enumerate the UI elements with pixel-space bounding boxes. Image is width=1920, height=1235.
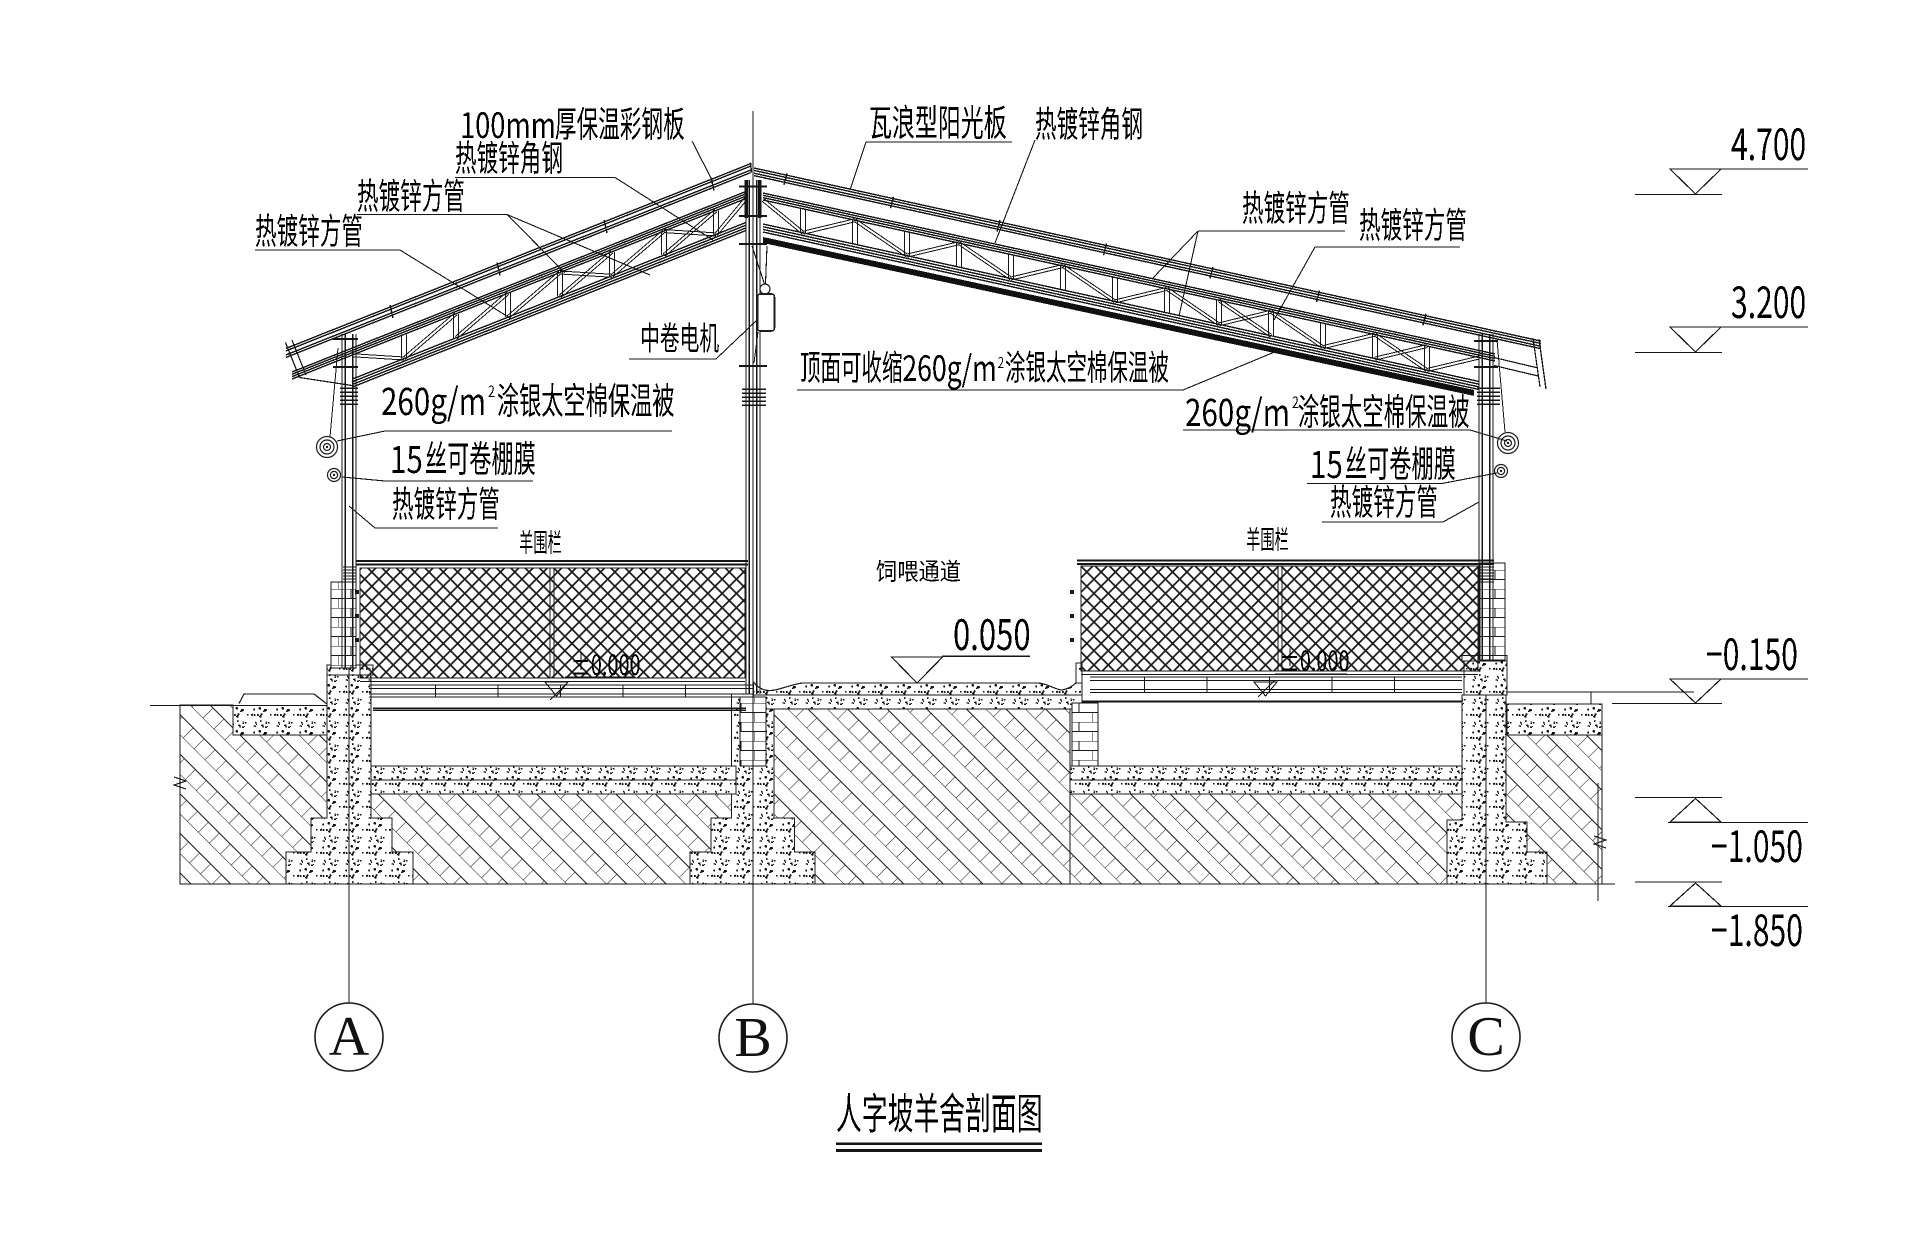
svg-text:C: C (1467, 1006, 1504, 1068)
svg-text:A: A (329, 1006, 370, 1068)
svg-text:B: B (734, 1007, 771, 1069)
